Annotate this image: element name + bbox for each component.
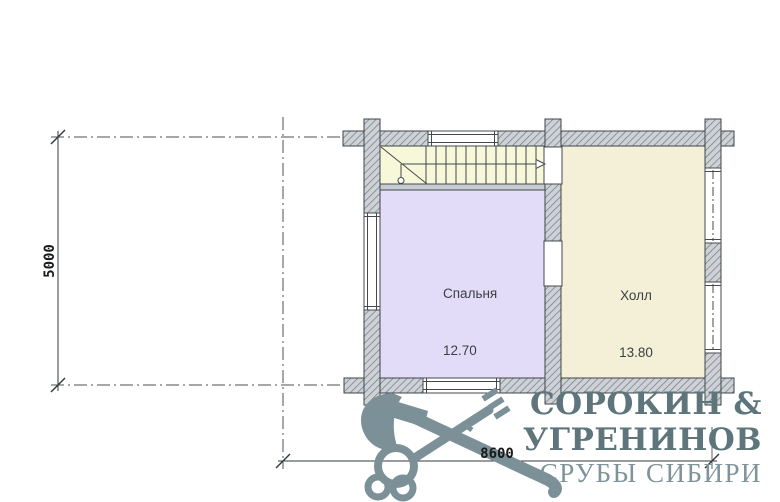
room-name-bedroom: Спальня [443, 284, 497, 303]
logo-name-line-2: УГРЕНИНОВ [430, 422, 762, 458]
key-bow-small-2 [393, 478, 413, 498]
room-area-bedroom: 12.70 [443, 341, 497, 360]
dimension-height-5000: 5000 [42, 233, 58, 289]
room-area-hall: 13.80 [596, 343, 676, 362]
floor-plan-page: 5000 8600 Спальня 12.70 Холл 13.80 СОРОК… [0, 0, 780, 502]
room-label-bedroom: Спальня 12.70 [443, 246, 497, 398]
logo-name-line-1: СОРОКИН & [430, 386, 762, 422]
axe-eye [391, 401, 428, 427]
room-name-hall: Холл [596, 286, 676, 305]
room-label-hall: Холл 13.80 [596, 248, 676, 400]
company-logo-text: СОРОКИН & УГРЕНИНОВ СРУБЫ СИБИРИ [430, 386, 762, 489]
logo-tagline: СРУБЫ СИБИРИ [430, 458, 762, 489]
key-bow-small-1 [368, 477, 388, 497]
